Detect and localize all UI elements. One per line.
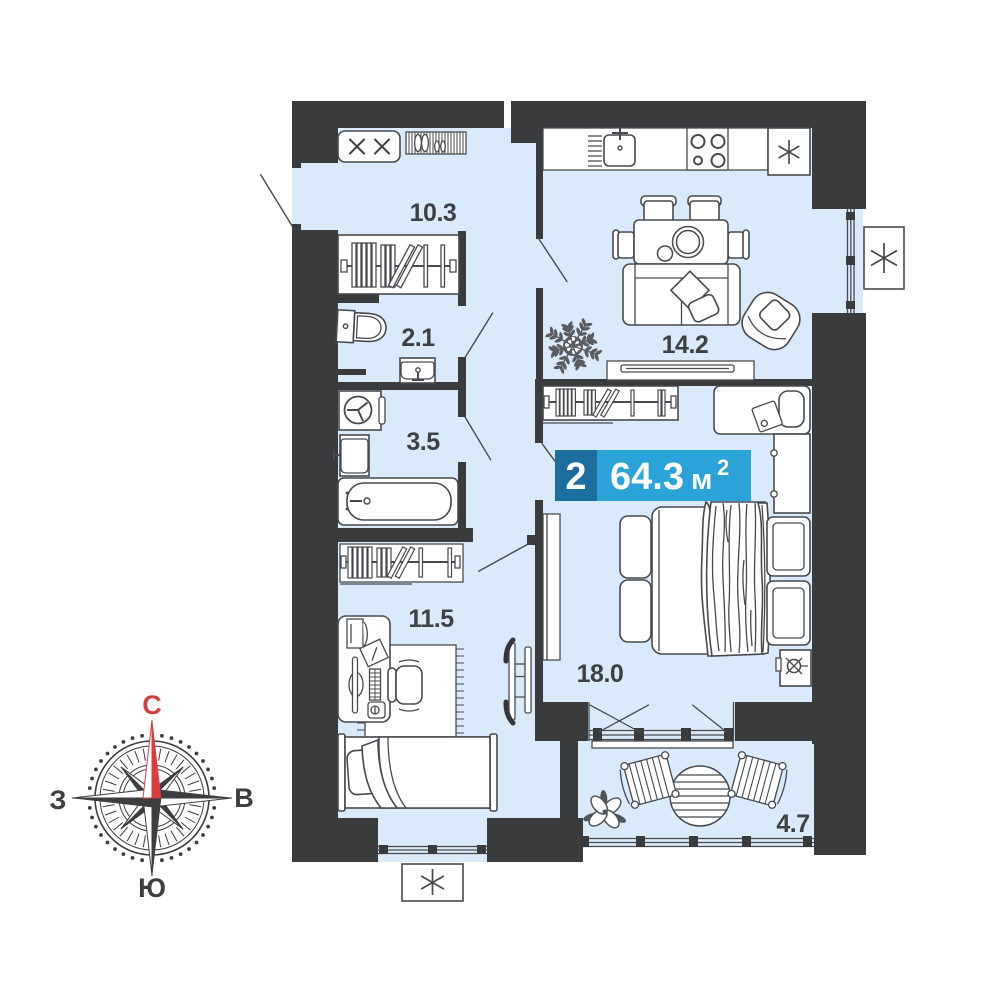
svg-text:З: З	[50, 785, 67, 815]
svg-text:14.2: 14.2	[662, 331, 709, 359]
svg-text:С: С	[142, 690, 162, 720]
svg-text:18.0: 18.0	[577, 660, 624, 688]
svg-text:10.3: 10.3	[410, 199, 457, 227]
svg-text:11.5: 11.5	[408, 605, 454, 633]
svg-text:2: 2	[717, 455, 729, 480]
svg-text:64.3: 64.3	[610, 456, 684, 498]
svg-text:4.7: 4.7	[776, 810, 809, 838]
svg-text:В: В	[234, 783, 254, 813]
svg-text:2: 2	[565, 456, 586, 498]
svg-text:2.1: 2.1	[401, 324, 435, 352]
svg-text:м: м	[691, 464, 712, 496]
svg-text:3.5: 3.5	[406, 428, 440, 456]
svg-text:Ю: Ю	[138, 873, 166, 903]
